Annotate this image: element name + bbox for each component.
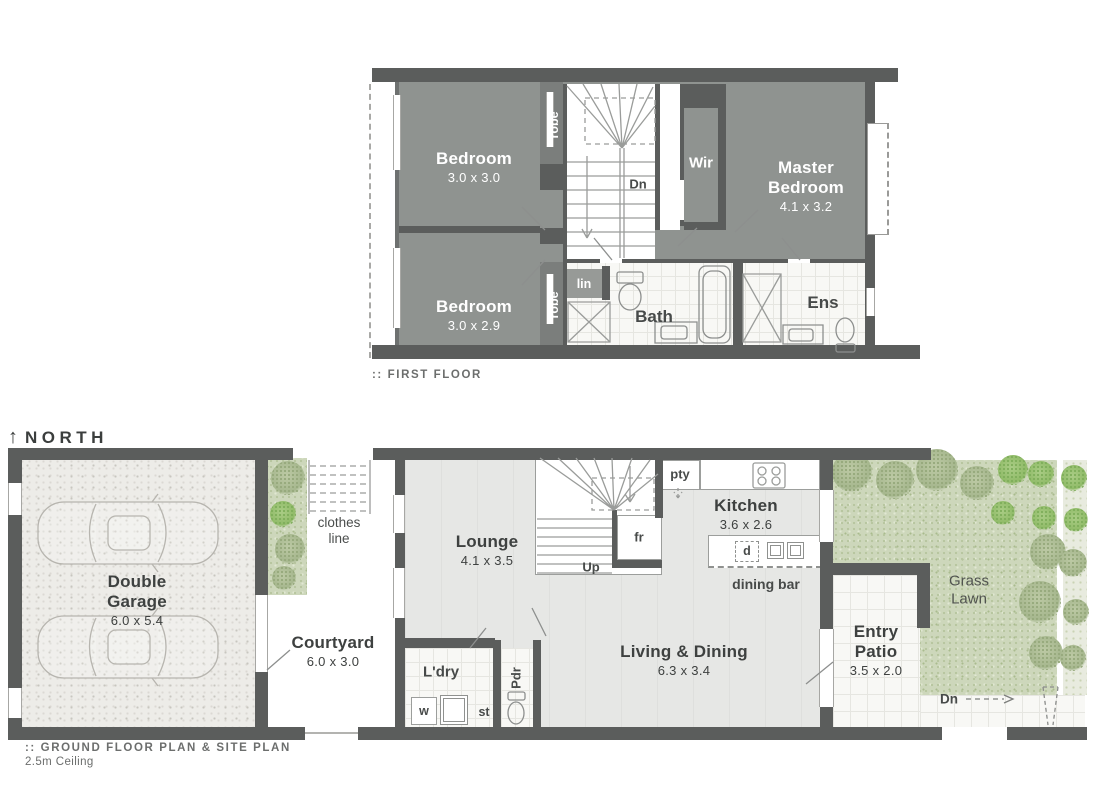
room-dims: 3.6 x 2.6 xyxy=(720,517,773,532)
front-door-gap xyxy=(819,629,834,707)
room-name: Double Garage xyxy=(87,572,187,612)
dining-bar-label: dining bar xyxy=(732,576,800,592)
north-arrow-icon: ↑ xyxy=(8,426,18,449)
room-name: Courtyard xyxy=(291,633,374,653)
robe-label: robe xyxy=(547,111,561,138)
wir-label: Wir xyxy=(689,155,713,172)
wall-living-right xyxy=(820,573,833,629)
garage-opening xyxy=(8,688,22,718)
laundry-label: L'dry xyxy=(423,664,459,681)
tree-icon xyxy=(998,455,1028,485)
tree-icon xyxy=(1059,549,1087,577)
wall-patio-right xyxy=(917,563,930,628)
ens-door-gap xyxy=(788,259,810,263)
wall xyxy=(563,84,567,262)
linen-label: lin xyxy=(577,277,592,291)
label-clothes-line: clothes line xyxy=(306,515,372,547)
north-indicator: ↑ NORTH xyxy=(8,426,108,449)
laundry-tub xyxy=(440,695,468,725)
room-label-garage: Double Garage 6.0 x 5.4 xyxy=(87,572,187,628)
wall-garage-right xyxy=(255,672,268,727)
room-name: Lounge xyxy=(456,532,519,552)
window xyxy=(393,568,405,618)
wall xyxy=(718,84,726,230)
room-name: Bedroom xyxy=(436,297,512,317)
window xyxy=(866,288,875,316)
wall-bottom xyxy=(8,727,305,740)
dishwasher-label: d xyxy=(743,544,751,558)
room-label-living: Living & Dining 6.3 x 3.4 xyxy=(584,642,784,678)
tree-icon xyxy=(1032,506,1056,530)
window xyxy=(393,95,401,170)
wall xyxy=(655,458,663,518)
wall-bed-divider xyxy=(399,226,540,233)
stairs-down-label: Dn xyxy=(629,177,646,192)
label-grass-lawn: Grass Lawn xyxy=(939,572,999,607)
room-name: Living & Dining xyxy=(620,642,748,662)
room-dims: 4.1 x 3.5 xyxy=(461,553,514,568)
grass-lawn-text: Grass Lawn xyxy=(939,572,999,607)
window xyxy=(393,248,401,328)
wall-garage-right xyxy=(255,458,268,595)
tub-label: st xyxy=(478,705,489,719)
tree-icon xyxy=(1063,599,1089,625)
garage-opening xyxy=(8,483,22,515)
room-dims: 4.1 x 3.2 xyxy=(780,199,833,214)
tree-icon xyxy=(960,466,994,500)
tree-icon xyxy=(272,566,296,590)
ceiling-note: 2.5m Ceiling xyxy=(25,756,94,768)
tree-icon xyxy=(1061,465,1087,491)
tree-icon xyxy=(270,501,296,527)
sink xyxy=(787,542,804,559)
stairs-up-label: Up xyxy=(582,560,599,575)
room-dims: 3.5 x 2.0 xyxy=(850,663,903,678)
room-dims: 3.0 x 3.0 xyxy=(448,170,501,185)
wall-powder-right xyxy=(533,640,541,727)
island-bench xyxy=(708,535,822,568)
wall-bottom xyxy=(358,727,942,740)
wall-top xyxy=(373,448,931,460)
room-label-lounge: Lounge 4.1 x 3.5 xyxy=(456,532,519,568)
fridge-label: fr xyxy=(634,530,643,545)
room-label-master: Master Bedroom 4.1 x 3.2 xyxy=(750,158,862,214)
bath-label: Bath xyxy=(635,307,673,327)
clothes-line-text: clothes line xyxy=(306,515,372,547)
room-label-kitchen: Kitchen 3.6 x 2.6 xyxy=(714,496,778,532)
wall-bottom xyxy=(372,345,920,359)
wall-bottom xyxy=(1007,727,1087,740)
wall-powder-left xyxy=(493,640,501,727)
tree-icon xyxy=(1060,645,1086,671)
tree-icon xyxy=(271,461,305,495)
first-floor-caption: :: FIRST FLOOR xyxy=(372,369,482,381)
room-dims: 6.3 x 3.4 xyxy=(658,663,711,678)
room-dims: 6.0 x 3.0 xyxy=(307,654,360,669)
floor-plan-canvas: Bedroom 3.0 x 3.0 Bedroom 3.0 x 2.9 Mast… xyxy=(0,0,1095,808)
tree-icon xyxy=(991,501,1015,525)
wall xyxy=(655,84,660,230)
wall-lounge-bottom xyxy=(395,638,495,648)
room-label-entry-patio: Entry Patio 3.5 x 2.0 xyxy=(844,622,908,678)
stairwell-upper xyxy=(567,84,655,262)
tree-icon xyxy=(1028,461,1054,487)
wall xyxy=(617,560,662,568)
wall xyxy=(563,262,567,345)
wall-top xyxy=(372,68,898,82)
window xyxy=(819,490,834,542)
hall-strip xyxy=(660,84,680,230)
kitchen-bench xyxy=(700,460,820,490)
powder-label: Pdr xyxy=(509,667,524,689)
tree-icon xyxy=(1029,636,1063,670)
washer-label: w xyxy=(419,704,429,718)
site-boundary-line xyxy=(369,84,371,358)
tree-icon xyxy=(1064,508,1088,532)
ens-label: Ens xyxy=(807,293,838,313)
wall xyxy=(733,262,743,345)
wall-living-right xyxy=(820,707,833,727)
room-label-bedroom2: Bedroom 3.0 x 2.9 xyxy=(436,297,512,333)
room-dims: 6.0 x 5.4 xyxy=(111,613,164,628)
window xyxy=(393,495,405,533)
room-label-courtyard: Courtyard 6.0 x 3.0 xyxy=(268,633,398,669)
tree-icon xyxy=(876,461,914,499)
robe-label: robe xyxy=(547,291,561,318)
room-name: Master Bedroom xyxy=(750,158,862,198)
tree-icon xyxy=(275,534,305,564)
north-label: NORTH xyxy=(25,428,108,448)
wall xyxy=(602,266,610,300)
garage-door-gap xyxy=(255,595,268,672)
room-name: Kitchen xyxy=(714,496,778,516)
bath-door-gap xyxy=(600,259,622,263)
room-name: Bedroom xyxy=(436,149,512,169)
gate-line xyxy=(305,732,358,734)
tree-icon xyxy=(1019,581,1061,623)
room-label-bedroom1: Bedroom 3.0 x 3.0 xyxy=(436,149,512,185)
walkway-down-label: Dn xyxy=(940,692,958,707)
sink xyxy=(767,542,784,559)
wir-door-gap xyxy=(680,180,684,220)
ground-floor-caption: :: GROUND FLOOR PLAN & SITE PLAN xyxy=(25,742,291,754)
room-dims: 3.0 x 2.9 xyxy=(448,318,501,333)
pantry-label: pty xyxy=(670,467,690,482)
master-window-bay xyxy=(867,123,889,235)
wall xyxy=(684,222,726,230)
room-name: Entry Patio xyxy=(844,622,908,662)
wall-patio-top xyxy=(830,563,920,575)
wall-top xyxy=(8,448,293,460)
